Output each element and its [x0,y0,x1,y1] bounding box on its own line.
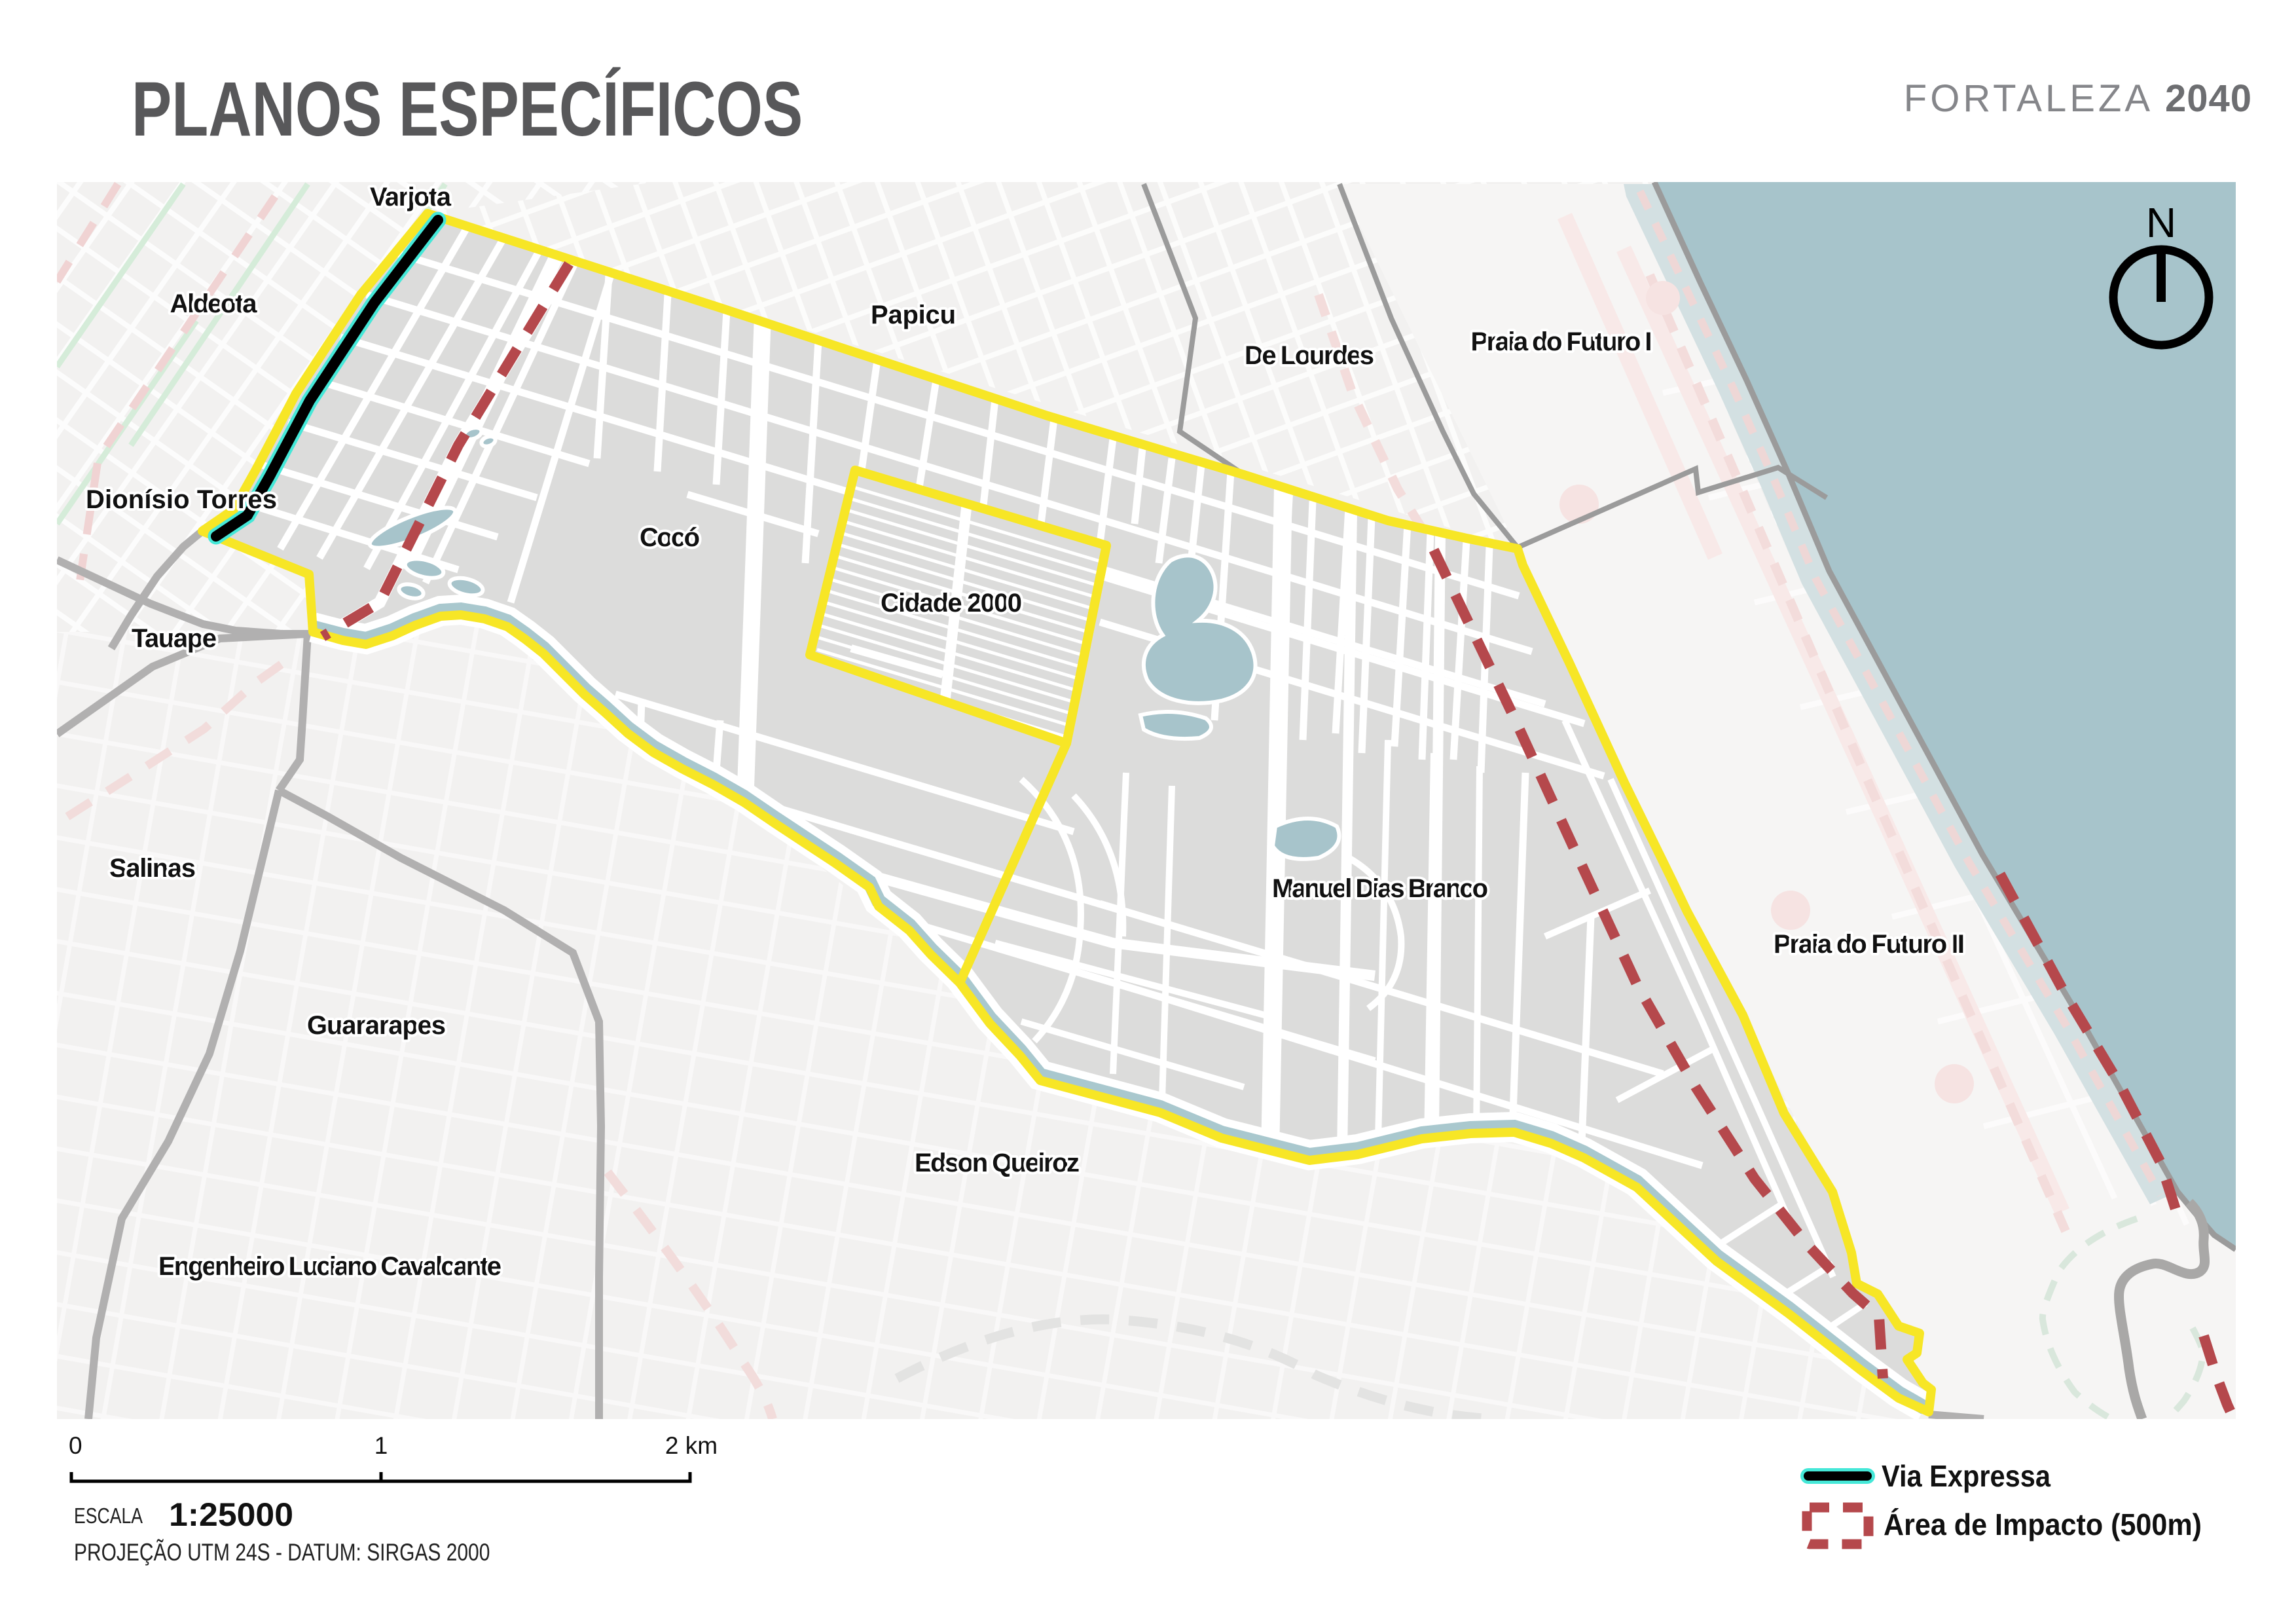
svg-text:Cocó: Cocó [640,523,700,552]
svg-text:Praia do Futuro II: Praia do Futuro II [1774,930,1965,959]
svg-text:2 km: 2 km [665,1432,718,1459]
svg-text:Varjota: Varjota [370,183,452,212]
svg-text:Aldeota: Aldeota [170,289,258,318]
svg-text:Papicu: Papicu [871,301,956,329]
svg-text:Tauape: Tauape [132,624,217,653]
svg-text:Dionísio Torres: Dionísio Torres [86,485,277,514]
svg-text:Guararapes: Guararapes [307,1011,446,1040]
svg-text:PLANOS ESPECÍFICOS: PLANOS ESPECÍFICOS [132,66,803,153]
svg-text:1:25000: 1:25000 [169,1496,293,1533]
svg-text:N: N [2146,199,2176,246]
svg-text:Área de Impacto (500m): Área de Impacto (500m) [1884,1507,2202,1541]
svg-text:Manuel Dias Branco: Manuel Dias Branco [1272,874,1488,903]
svg-text:Via Expressa: Via Expressa [1882,1459,2050,1493]
svg-text:Praia do Futuro I: Praia do Futuro I [1471,327,1652,356]
svg-text:1: 1 [374,1432,388,1459]
svg-text:Engenheiro Luciano Cavalcante: Engenheiro Luciano Cavalcante [158,1252,501,1281]
svg-text:FORTALEZA 2040: FORTALEZA 2040 [1904,77,2252,120]
svg-text:0: 0 [69,1432,82,1459]
svg-text:ESCALA: ESCALA [74,1504,143,1528]
svg-text:PROJEÇÃO UTM 24S - DATUM: SIRG: PROJEÇÃO UTM 24S - DATUM: SIRGAS 2000 [74,1539,490,1566]
svg-text:De Lourdes: De Lourdes [1245,341,1374,370]
svg-text:Edson Queiroz: Edson Queiroz [915,1149,1080,1177]
svg-text:Cidade 2000: Cidade 2000 [881,589,1022,618]
svg-text:Salinas: Salinas [109,854,196,883]
